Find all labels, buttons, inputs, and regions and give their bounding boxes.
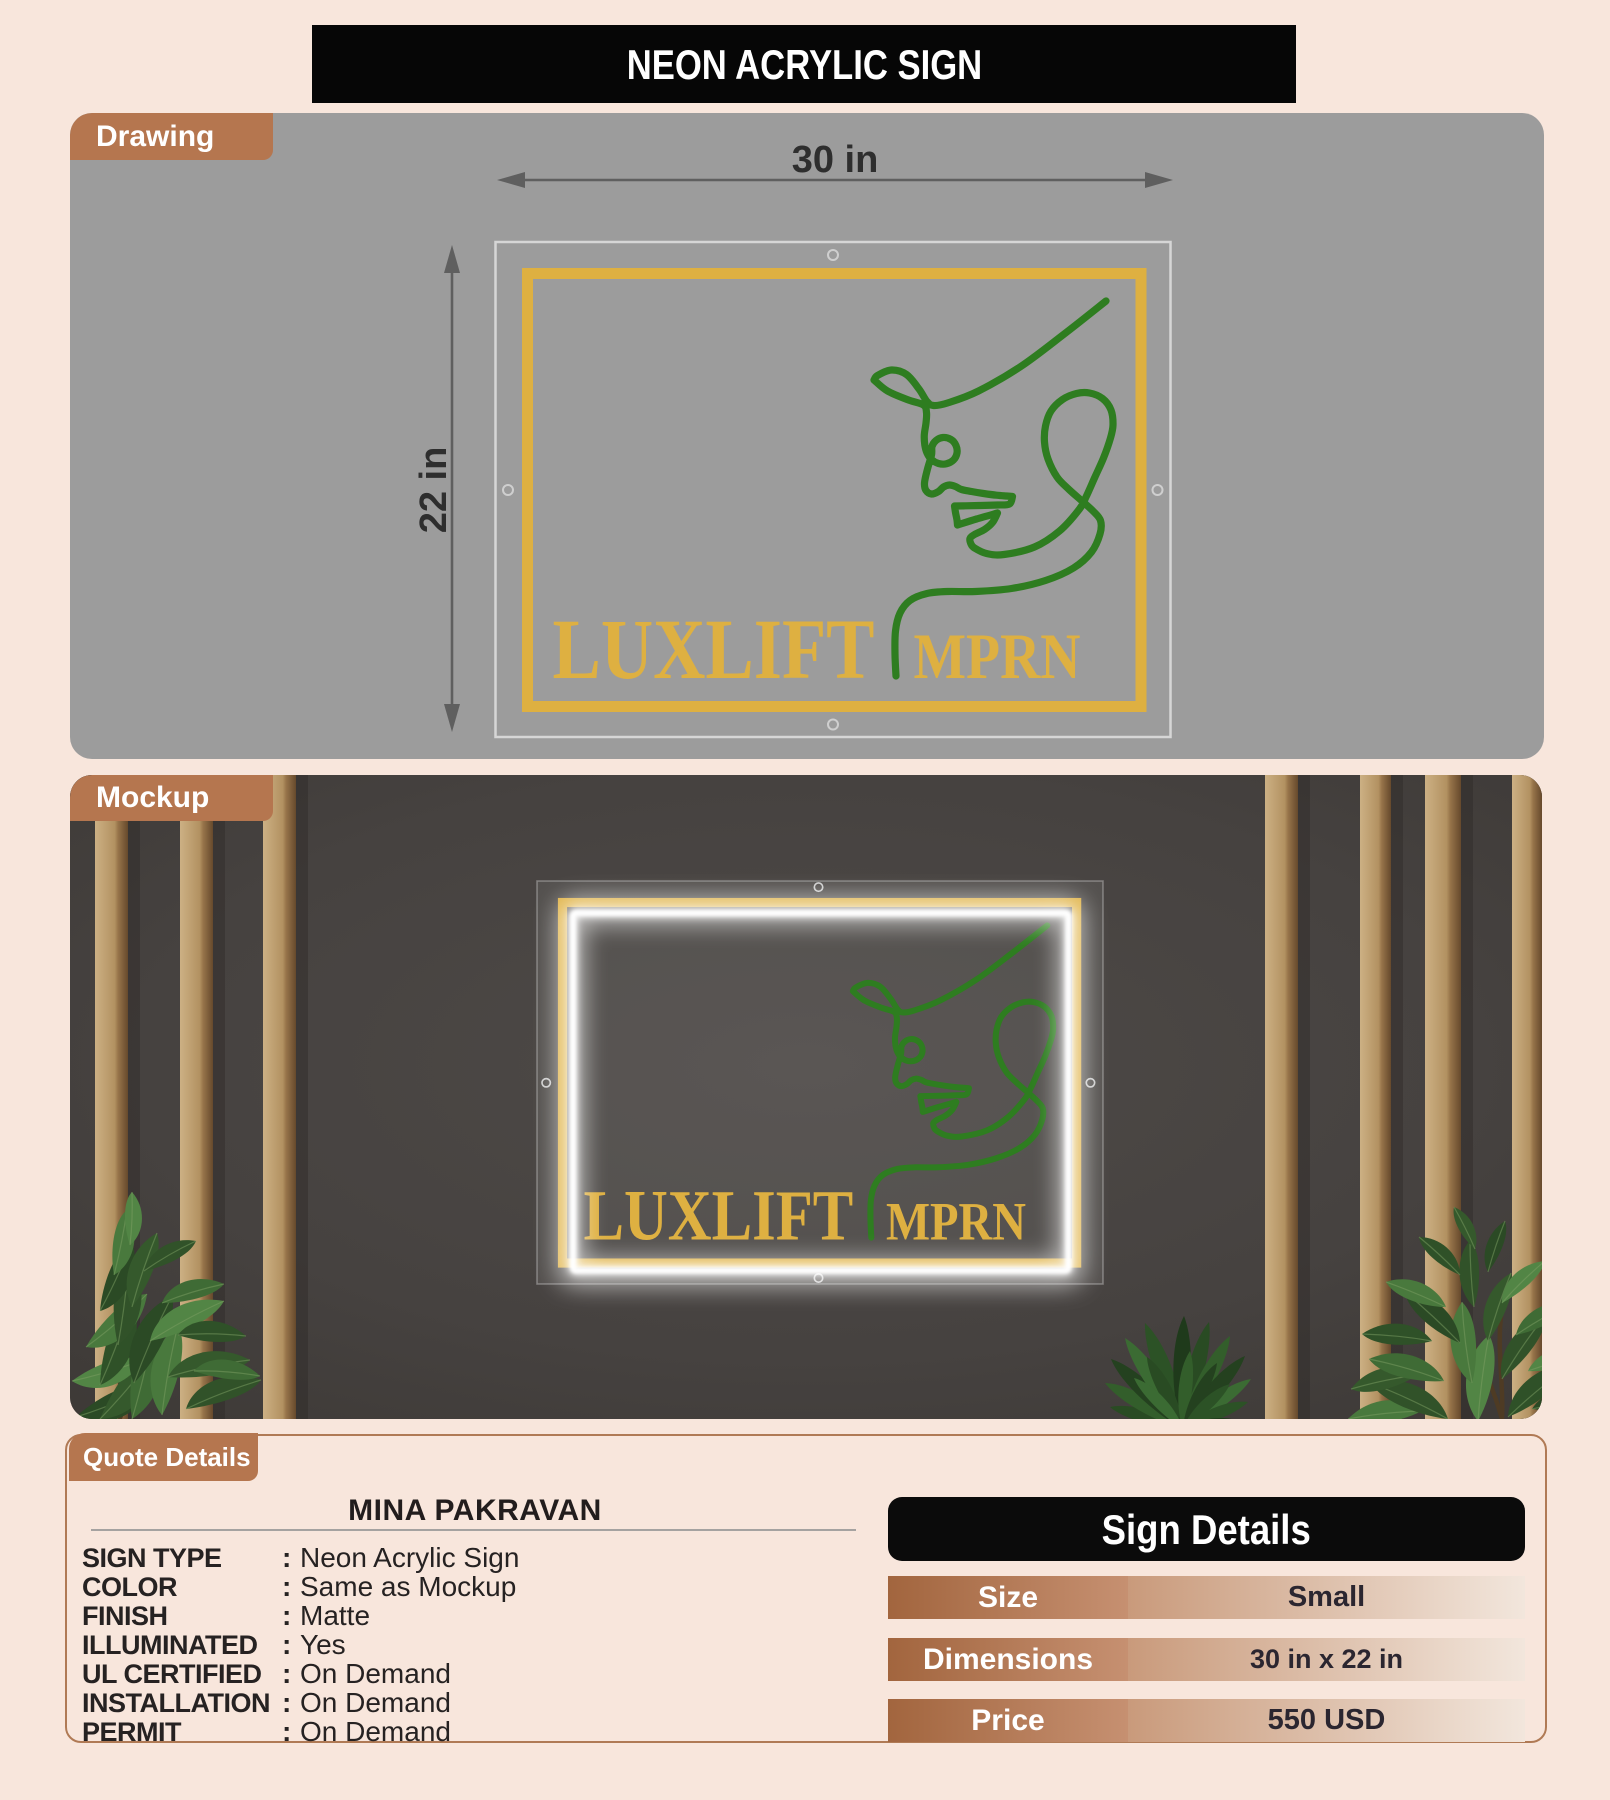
- svg-text:22 in: 22 in: [413, 447, 455, 534]
- svg-text:30 in: 30 in: [792, 139, 879, 181]
